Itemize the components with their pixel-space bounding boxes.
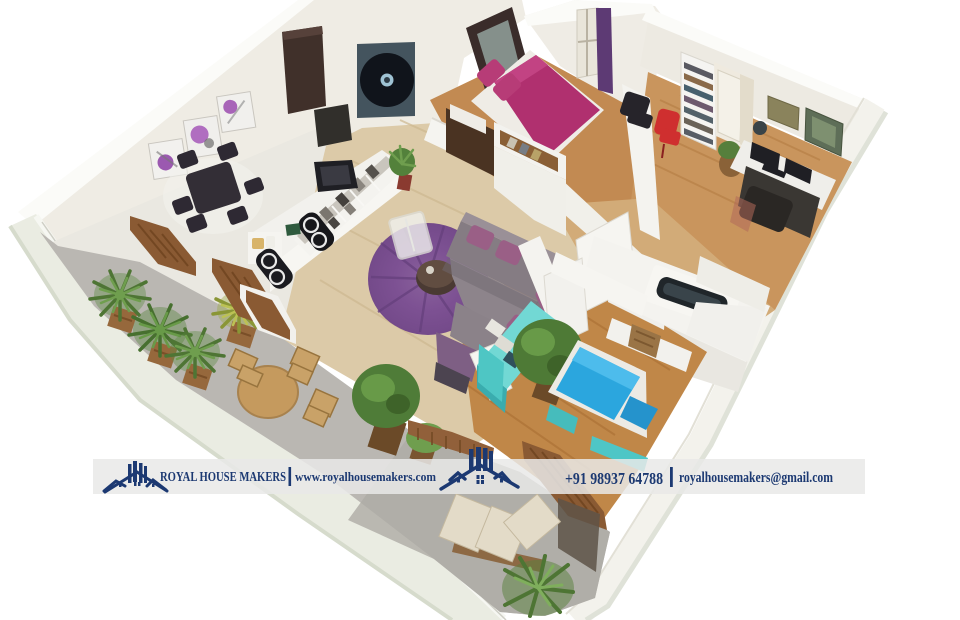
svg-text:royalhousemakers@gmail.com: royalhousemakers@gmail.com <box>679 470 833 486</box>
svg-text:+91 98937 64788: +91 98937 64788 <box>565 469 663 488</box>
svg-text:www.royalhousemakers.com: www.royalhousemakers.com <box>295 469 436 484</box>
svg-text:ROYAL HOUSE MAKERS: ROYAL HOUSE MAKERS <box>160 469 286 484</box>
